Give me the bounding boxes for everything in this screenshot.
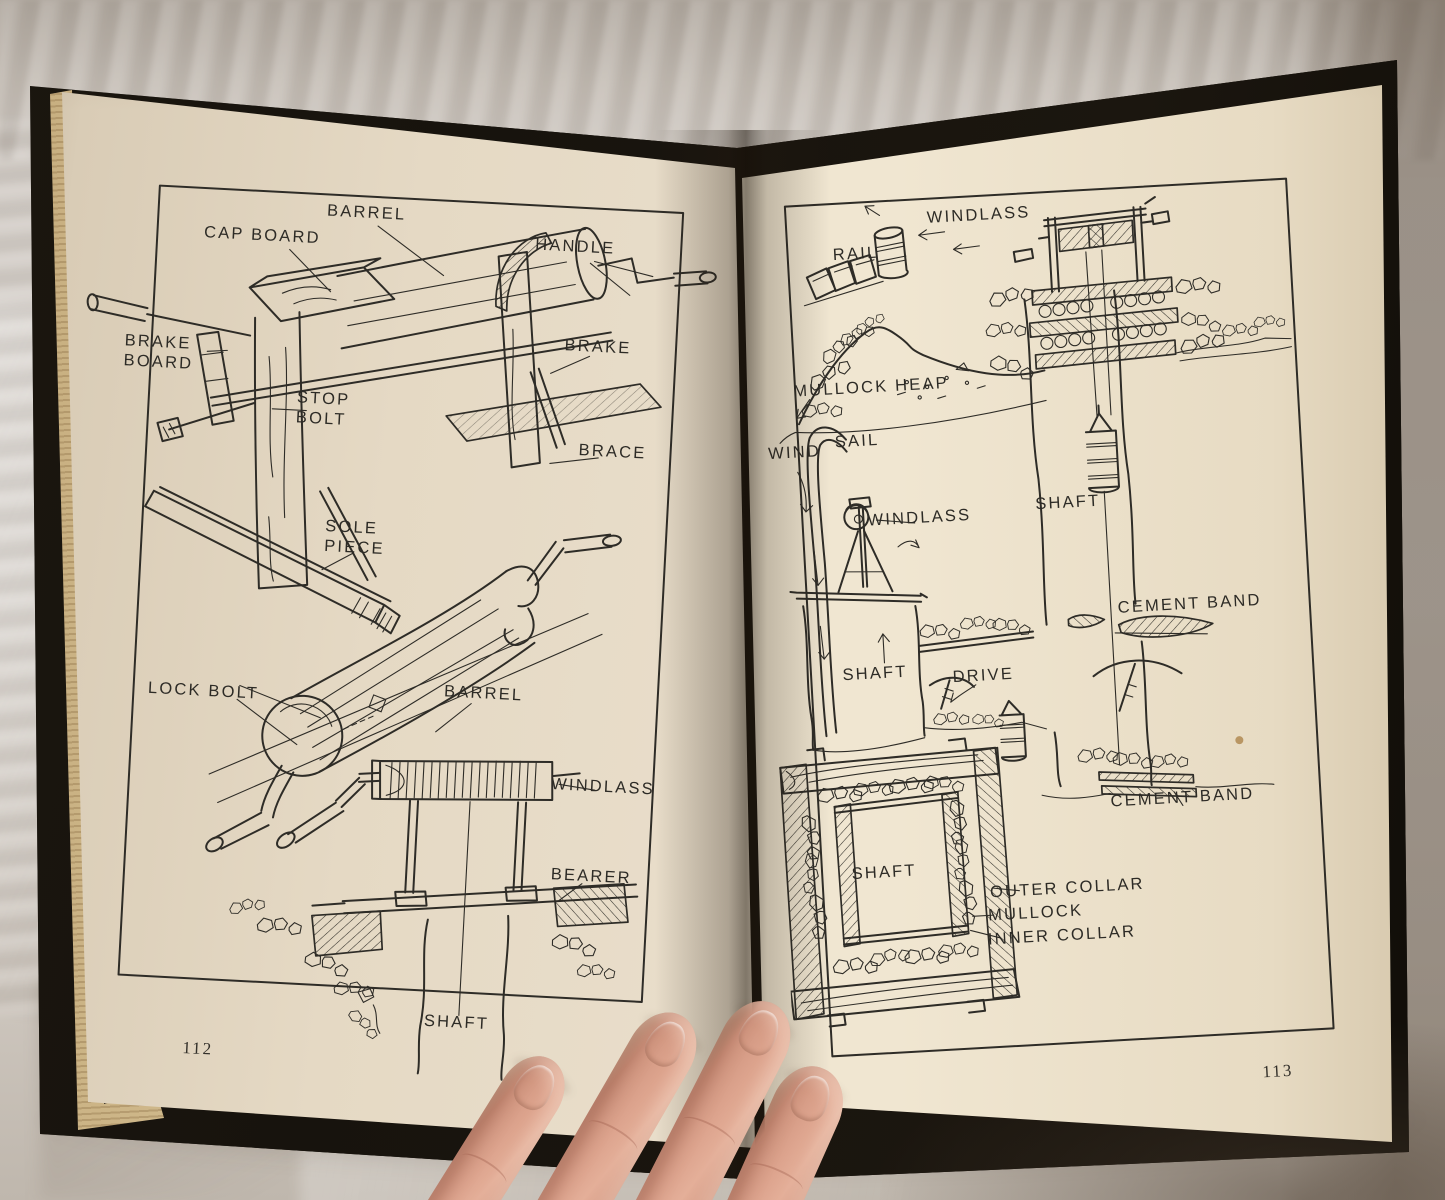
label-handle: HANDLE	[535, 235, 616, 259]
page-number-113: 113	[1262, 1061, 1294, 1083]
label-wind: WIND	[768, 442, 822, 465]
windlass-construction-diagram	[2, 85, 754, 1130]
label-drive: DRIVE	[952, 665, 1014, 688]
label-shaft-upper: SHAFT	[1035, 492, 1101, 515]
label-sail: SAIL	[834, 431, 880, 453]
fingernail	[639, 1015, 693, 1073]
label-barrel-2: BARREL	[444, 682, 524, 706]
label-brake-board: BRAKE BOARD	[123, 331, 219, 375]
label-brace: BRACE	[578, 441, 647, 464]
page-number-112: 112	[182, 1038, 214, 1060]
label-shaft-mid: SHAFT	[842, 663, 908, 686]
book-photo-scene: BARREL CAP BOARD HANDLE BRAKE BOARD BRAK…	[0, 0, 1445, 1200]
label-bearer: BEARER	[550, 865, 632, 889]
label-brake: BRAKE	[564, 336, 632, 359]
label-rail: RAIL	[832, 244, 879, 266]
mine-shaft-diagram	[740, 49, 1445, 1134]
label-barrel: BARREL	[327, 202, 407, 226]
fingernail	[785, 1070, 837, 1127]
label-shaft-box: SHAFT	[851, 861, 917, 884]
label-sole-piece: SOLE PIECE	[324, 517, 408, 561]
label-shaft: SHAFT	[423, 1012, 489, 1035]
fingernail	[733, 1004, 786, 1061]
label-stop-bolt: STOP BOLT	[295, 388, 373, 432]
